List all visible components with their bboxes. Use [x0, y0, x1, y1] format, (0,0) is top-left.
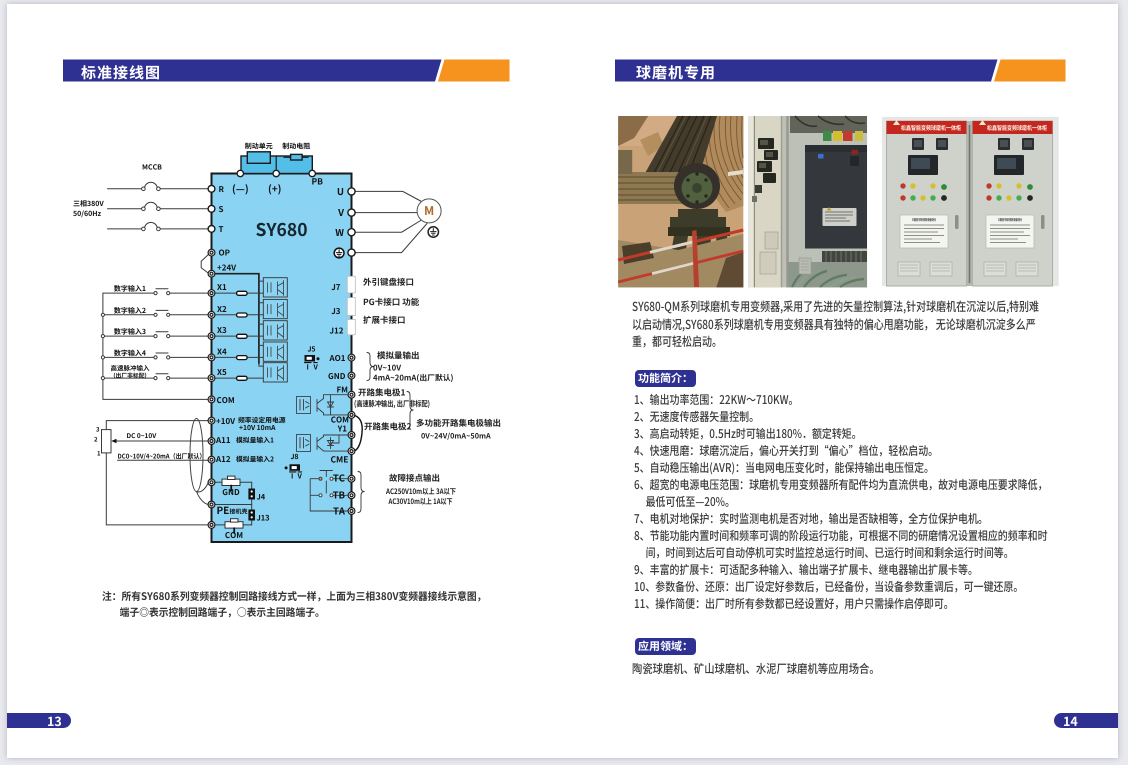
svg-text:松鑫智能变频球磨机一体柜: 松鑫智能变频球磨机一体柜: [901, 123, 961, 132]
svg-text:球磨机专用变频器说明: 球磨机专用变频器说明: [998, 218, 1023, 223]
svg-text:球磨机专用变频器说明: 球磨机专用变频器说明: [912, 218, 937, 223]
svg-text:松鑫智能变频球磨机一体柜: 松鑫智能变频球磨机一体柜: [987, 123, 1047, 132]
